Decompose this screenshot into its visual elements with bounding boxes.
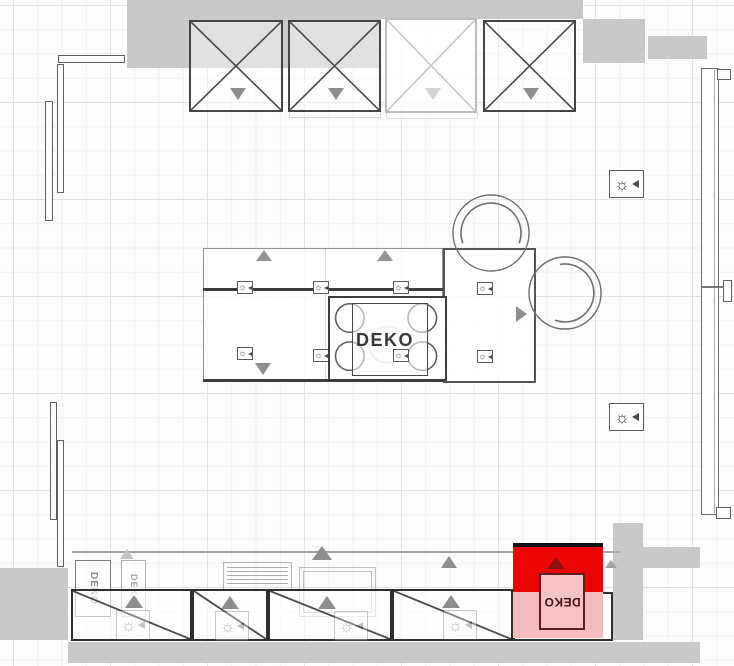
arrow-left-shape (632, 180, 639, 188)
arrow-left-shape (404, 354, 408, 358)
drainer-lines (227, 567, 288, 586)
door-swing-icon (125, 595, 143, 608)
sink-drainer-ghost[interactable] (223, 562, 292, 590)
ceiling-light-icon[interactable]: ☼ (313, 281, 329, 294)
wall-window-segment[interactable] (58, 55, 125, 63)
wall-connector (717, 69, 731, 80)
outside-area (68, 642, 700, 663)
ceiling-light-icon-ghost: ☼ (116, 610, 150, 640)
wall-cabinet-ghost[interactable] (385, 18, 477, 113)
door-swing-icon (523, 88, 539, 100)
cooktop[interactable]: DEKO (328, 296, 447, 381)
wall-cabinet[interactable] (189, 20, 283, 112)
wall-cabinet[interactable] (288, 20, 381, 112)
ceiling-light-icon[interactable]: ☼ (393, 281, 409, 294)
arrow-left-shape (632, 413, 639, 421)
ceiling-light-icon[interactable]: ☼ (609, 170, 644, 198)
door-swing-icon (377, 250, 393, 261)
ghost-rail (386, 112, 478, 119)
arrow-left-shape (248, 286, 252, 290)
arrow-left-shape (488, 287, 492, 291)
floorplan-canvas[interactable]: ☼ ☼ ☼ ☼ ☼ ☼ ☼ DEKO ☼ ☼ ☼ DEKO (0, 0, 734, 666)
ceiling-light-icon[interactable]: ☼ (477, 282, 493, 295)
door-swing-icon (605, 560, 617, 568)
outside-area (583, 19, 645, 63)
ceiling-light-icon[interactable]: ☼ (237, 281, 253, 294)
wall-window-segment[interactable] (57, 64, 64, 193)
door-swing-icon (442, 595, 460, 608)
arrow-left-shape (404, 286, 408, 290)
door-swing-icon (547, 557, 565, 569)
arrow-left-shape (488, 355, 492, 359)
door-swing-icon (230, 88, 246, 100)
door-swing-icon (516, 306, 527, 322)
arrow-left-shape (248, 352, 252, 356)
door-swing-icon (328, 88, 344, 100)
wall-window-segment[interactable] (45, 101, 53, 221)
door-swing-icon (312, 546, 332, 560)
arrow-left-shape (138, 621, 145, 629)
ceiling-light-icon-ghost: ☼ (334, 611, 368, 641)
bar-stool[interactable] (529, 257, 601, 329)
arrow-left-shape (324, 286, 328, 290)
ceiling-light-icon[interactable]: ☼ (477, 350, 493, 363)
arrow-left-shape (465, 621, 472, 629)
arrow-left-shape (356, 622, 363, 630)
door-swing-icon (441, 556, 457, 568)
outside-area (643, 547, 700, 568)
ceiling-light-icon[interactable]: ☼ (609, 403, 644, 431)
right-wall[interactable] (701, 68, 719, 515)
ceiling-light-icon[interactable]: ☼ (313, 349, 329, 362)
wall-connector (723, 280, 732, 302)
ceiling-light-icon-ghost: ☼ (443, 610, 477, 640)
door-swing-icon (425, 88, 441, 100)
ceiling-light-icon-ghost: ☼ (215, 611, 249, 641)
wall-window-segment[interactable] (57, 440, 64, 567)
arrow-left-shape (237, 622, 244, 630)
door-swing-icon (318, 596, 336, 609)
ceiling-light-icon[interactable]: ☼ (237, 347, 253, 360)
counter-edge-line (72, 551, 513, 553)
door-swing-icon (120, 549, 134, 559)
door-swing-icon (221, 596, 239, 609)
wall-cabinet[interactable] (483, 20, 576, 112)
selected-deco-item[interactable]: DEKO (539, 573, 585, 630)
wall-window-segment[interactable] (50, 402, 57, 520)
outside-area (381, 0, 583, 19)
counter-edge-line (603, 551, 620, 553)
outside-area (0, 568, 68, 640)
outside-area (648, 36, 707, 59)
deko-label: DEKO (544, 595, 581, 609)
outside-area (613, 523, 643, 640)
deko-label: DEKO (356, 330, 414, 351)
door-swing-icon (256, 250, 272, 261)
right-wall-inner-line (714, 70, 715, 513)
door-swing-icon (255, 363, 271, 375)
wall-connector (716, 507, 731, 519)
ceiling-light-icon[interactable]: ☼ (393, 349, 409, 362)
